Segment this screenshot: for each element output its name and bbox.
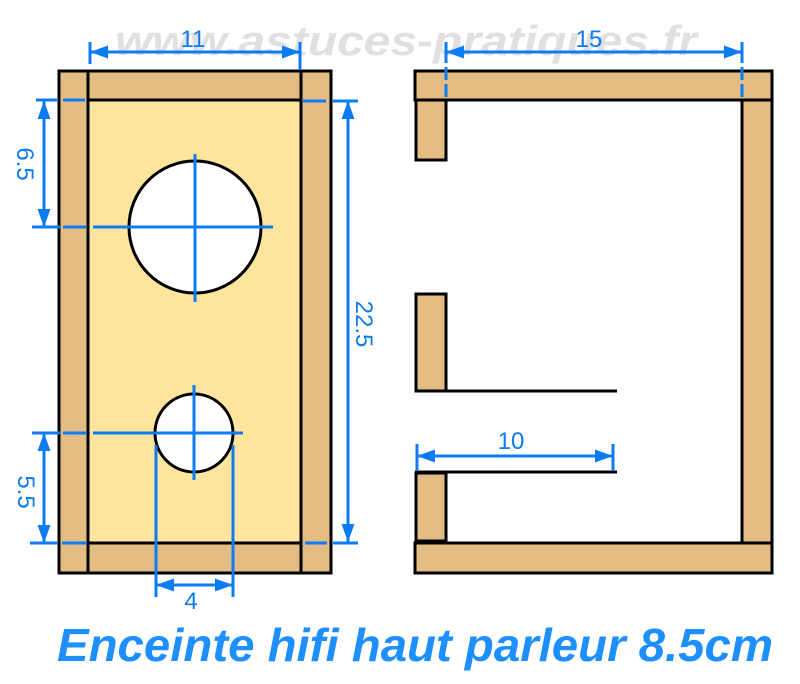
side-bottom-panel xyxy=(415,543,772,573)
side-top-panel xyxy=(415,71,772,100)
side-section-view: 15 10 xyxy=(415,26,772,573)
dim-label-inner-height: 22.5 xyxy=(350,301,377,348)
side-front-wall-lower xyxy=(416,473,446,541)
dim-label-port-diameter: 4 xyxy=(184,588,197,615)
side-front-wall-middle xyxy=(416,294,446,391)
side-back-wall xyxy=(742,100,772,543)
speaker-enclosure-diagram: www.astuces-pratiques.fr 11 xyxy=(0,0,800,684)
side-front-wall-upper xyxy=(416,100,446,160)
dim-label-port-center: 5.5 xyxy=(12,475,39,508)
dim-label-speaker-center: 6.5 xyxy=(11,147,38,180)
dim-label-inner-width: 11 xyxy=(181,26,206,53)
dim-port-length: 10 xyxy=(417,428,613,471)
dim-label-port-length: 10 xyxy=(498,428,525,455)
dim-label-inner-depth: 15 xyxy=(576,26,603,53)
front-view: 11 6.5 22.5 5.5 xyxy=(11,26,377,615)
page-title: Enceinte hifi haut parleur 8.5cm xyxy=(57,619,773,671)
